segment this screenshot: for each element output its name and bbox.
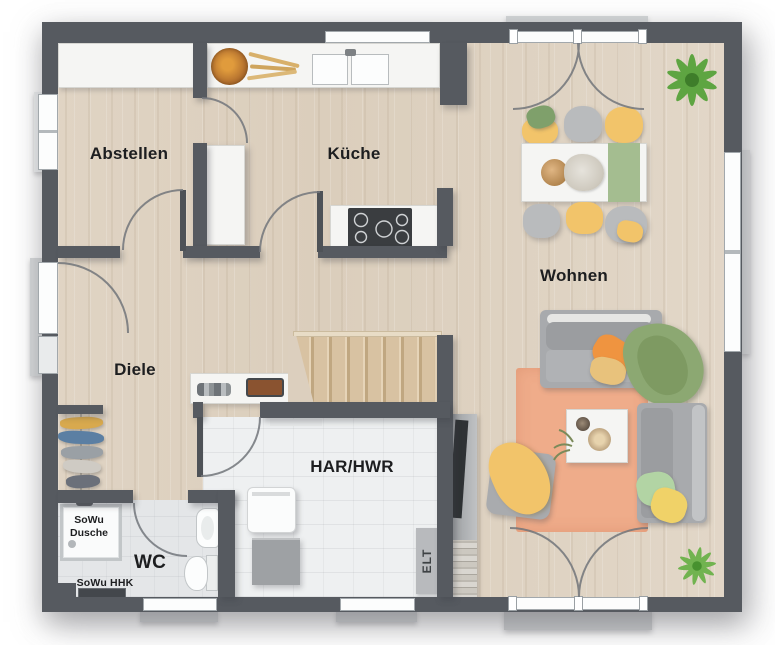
har-door-arc <box>201 417 260 476</box>
wc-door-arc <box>134 503 187 556</box>
abstellen-kueche-door-arc <box>202 98 247 143</box>
sprig-decor <box>554 430 573 460</box>
plant-icon <box>678 547 717 586</box>
annotation-sowu-hhk: SoWu HHK <box>77 577 134 589</box>
abstellen-door-arc <box>123 190 183 250</box>
room-label-abstellen: Abstellen <box>90 144 168 164</box>
room-label-wc: WC <box>134 552 166 574</box>
terrace-door-top-right-arc <box>578 43 644 109</box>
terrace-door-bottom-left-arc <box>510 528 579 597</box>
room-label-diele: Diele <box>114 360 156 380</box>
plant-icon <box>666 54 719 106</box>
annotation-line: Dusche <box>70 527 108 540</box>
floor-plan: Abstellen Küche Wohnen Diele HAR/HWR WC … <box>0 0 775 645</box>
room-label-wohnen: Wohnen <box>540 266 608 286</box>
annotation-sowu-dusche: SoWu Dusche <box>70 514 108 540</box>
room-label-har-hwr: HAR/HWR <box>310 457 394 477</box>
annotation-line: SoWu <box>70 514 108 527</box>
kueche-door-arc <box>260 192 320 252</box>
annotation-elt: ELT <box>420 549 434 574</box>
room-label-kueche: Küche <box>328 144 381 164</box>
terrace-door-top-left-arc <box>513 43 579 109</box>
terrace-door-bottom-right-arc <box>579 528 648 597</box>
door-arcs-overlay <box>0 0 775 645</box>
entry-door-arc <box>58 263 128 333</box>
